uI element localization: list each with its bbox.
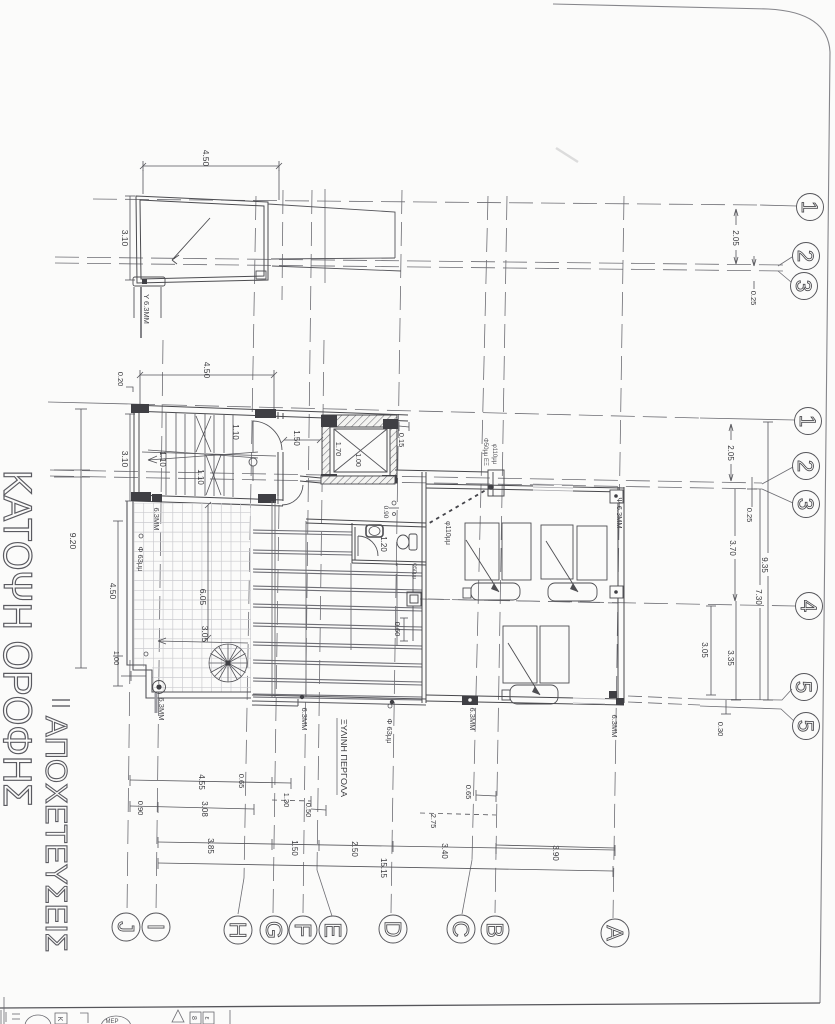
svg-text:4: 4: [796, 600, 821, 612]
svg-text:1.10: 1.10: [196, 469, 205, 485]
svg-text:0.25: 0.25: [749, 291, 758, 306]
svg-text:3.05: 3.05: [700, 642, 709, 658]
svg-text:1.10: 1.10: [158, 451, 167, 467]
svg-text:0.30: 0.30: [716, 722, 725, 737]
svg-text:3.08: 3.08: [200, 801, 209, 817]
svg-text:2.05: 2.05: [731, 230, 740, 246]
svg-text:1: 1: [797, 201, 822, 213]
svg-text:3.10: 3.10: [120, 230, 130, 247]
svg-text:3.70: 3.70: [728, 540, 737, 556]
svg-text:E: E: [320, 922, 346, 937]
svg-text:φ110μμ: φ110μμ: [444, 521, 451, 545]
svg-text:Φ50μμ: Φ50μμ: [411, 563, 417, 580]
svg-text:3.35: 3.35: [726, 650, 735, 666]
svg-text:A: A: [602, 925, 628, 941]
svg-text:1.50: 1.50: [290, 840, 299, 856]
svg-text:ΑΠΟΧΕΤΕΥΣΕΙΣ: ΑΠΟΧΕΤΕΥΣΕΙΣ: [39, 716, 74, 952]
svg-text:0.25: 0.25: [745, 508, 754, 523]
svg-text:D: D: [380, 921, 406, 938]
svg-text:7.30: 7.30: [754, 589, 763, 605]
svg-text:3.40: 3.40: [440, 843, 449, 859]
svg-text:6.3ΜΜ: 6.3ΜΜ: [152, 508, 161, 531]
svg-text:1.20: 1.20: [379, 536, 388, 552]
svg-text:F: F: [290, 923, 316, 937]
svg-text:0.15: 0.15: [397, 433, 406, 448]
svg-text:I: I: [143, 924, 169, 930]
svg-text:4.50: 4.50: [202, 362, 212, 379]
svg-text:Φ 63μμ: Φ 63μμ: [136, 546, 145, 571]
svg-text:Κ: Κ: [56, 1017, 63, 1022]
svg-text:3.10: 3.10: [120, 451, 130, 468]
svg-text:5: 5: [791, 681, 816, 693]
svg-text:4.55: 4.55: [197, 774, 206, 790]
svg-text:1.30: 1.30: [282, 793, 291, 808]
svg-text:2.05: 2.05: [726, 445, 735, 461]
svg-text:3.85: 3.85: [206, 838, 215, 854]
svg-text:ΚΑΤΟΨΗ ΟΡΟΦΗΣ: ΚΑΤΟΨΗ ΟΡΟΦΗΣ: [0, 470, 39, 807]
svg-text:1: 1: [795, 415, 820, 427]
svg-text:0.20: 0.20: [116, 372, 125, 387]
svg-text:ΜΕΡ: ΜΕΡ: [105, 1019, 118, 1024]
svg-text:Φ 63μμ: Φ 63μμ: [385, 718, 394, 743]
svg-text:1.00: 1.00: [112, 651, 121, 666]
svg-text:0.50: 0.50: [304, 803, 313, 818]
svg-text:6.3ΜΜ: 6.3ΜΜ: [157, 698, 166, 721]
svg-text:6.3ΜΜ: 6.3ΜΜ: [468, 708, 477, 731]
svg-text:5: 5: [793, 720, 818, 732]
svg-text:1.00: 1.00: [354, 453, 361, 467]
svg-text:4.50: 4.50: [201, 150, 211, 167]
svg-text:J: J: [113, 921, 139, 933]
svg-text:3.90: 3.90: [551, 845, 560, 861]
svg-text:1.50: 1.50: [292, 430, 301, 446]
svg-text:1.10: 1.10: [231, 424, 240, 440]
svg-text:1.70: 1.70: [334, 442, 343, 457]
svg-text:6.3ΜΜ: 6.3ΜΜ: [300, 708, 309, 731]
svg-text:0.65: 0.65: [237, 774, 246, 789]
svg-text:0.90: 0.90: [136, 801, 145, 816]
svg-text:9.20: 9.20: [68, 533, 78, 550]
svg-text:3: 3: [793, 498, 818, 510]
svg-text:Y 6.3MM: Y 6.3MM: [142, 294, 151, 324]
svg-text:6.3ΜΜ: 6.3ΜΜ: [610, 715, 619, 738]
svg-text:2.75: 2.75: [429, 814, 438, 829]
svg-text:0.60: 0.60: [393, 622, 402, 637]
svg-text:2: 2: [793, 460, 818, 472]
svg-text:H: H: [225, 922, 251, 939]
svg-text:9.35: 9.35: [760, 557, 769, 573]
svg-text:ε: ε: [203, 1016, 210, 1019]
svg-text:0.90: 0.90: [382, 506, 389, 519]
svg-text:0.65: 0.65: [464, 785, 473, 800]
svg-text:ΞΥΛΙΝΗ ΠΕΡΓΟΛΑ: ΞΥΛΙΝΗ ΠΕΡΓΟΛΑ: [339, 719, 348, 798]
svg-text:3.05: 3.05: [200, 626, 210, 643]
svg-text:6.05: 6.05: [198, 589, 208, 606]
svg-text:15.15: 15.15: [379, 858, 388, 879]
svg-text:8: 8: [190, 1016, 197, 1020]
svg-text:Φ50μμ ΕΞ: Φ50μμ ΕΞ: [482, 438, 488, 466]
svg-text:φ110μμ: φ110μμ: [491, 444, 497, 465]
svg-text:4.50: 4.50: [108, 583, 118, 600]
svg-text:C: C: [448, 921, 474, 938]
svg-text:B: B: [482, 922, 508, 937]
svg-text:G: G: [261, 921, 287, 939]
svg-text:2: 2: [793, 250, 818, 262]
svg-text:2.50: 2.50: [350, 841, 359, 857]
svg-text:Ψ 6.3ΜΜ: Ψ 6.3ΜΜ: [615, 497, 624, 528]
svg-text:3: 3: [791, 280, 816, 292]
